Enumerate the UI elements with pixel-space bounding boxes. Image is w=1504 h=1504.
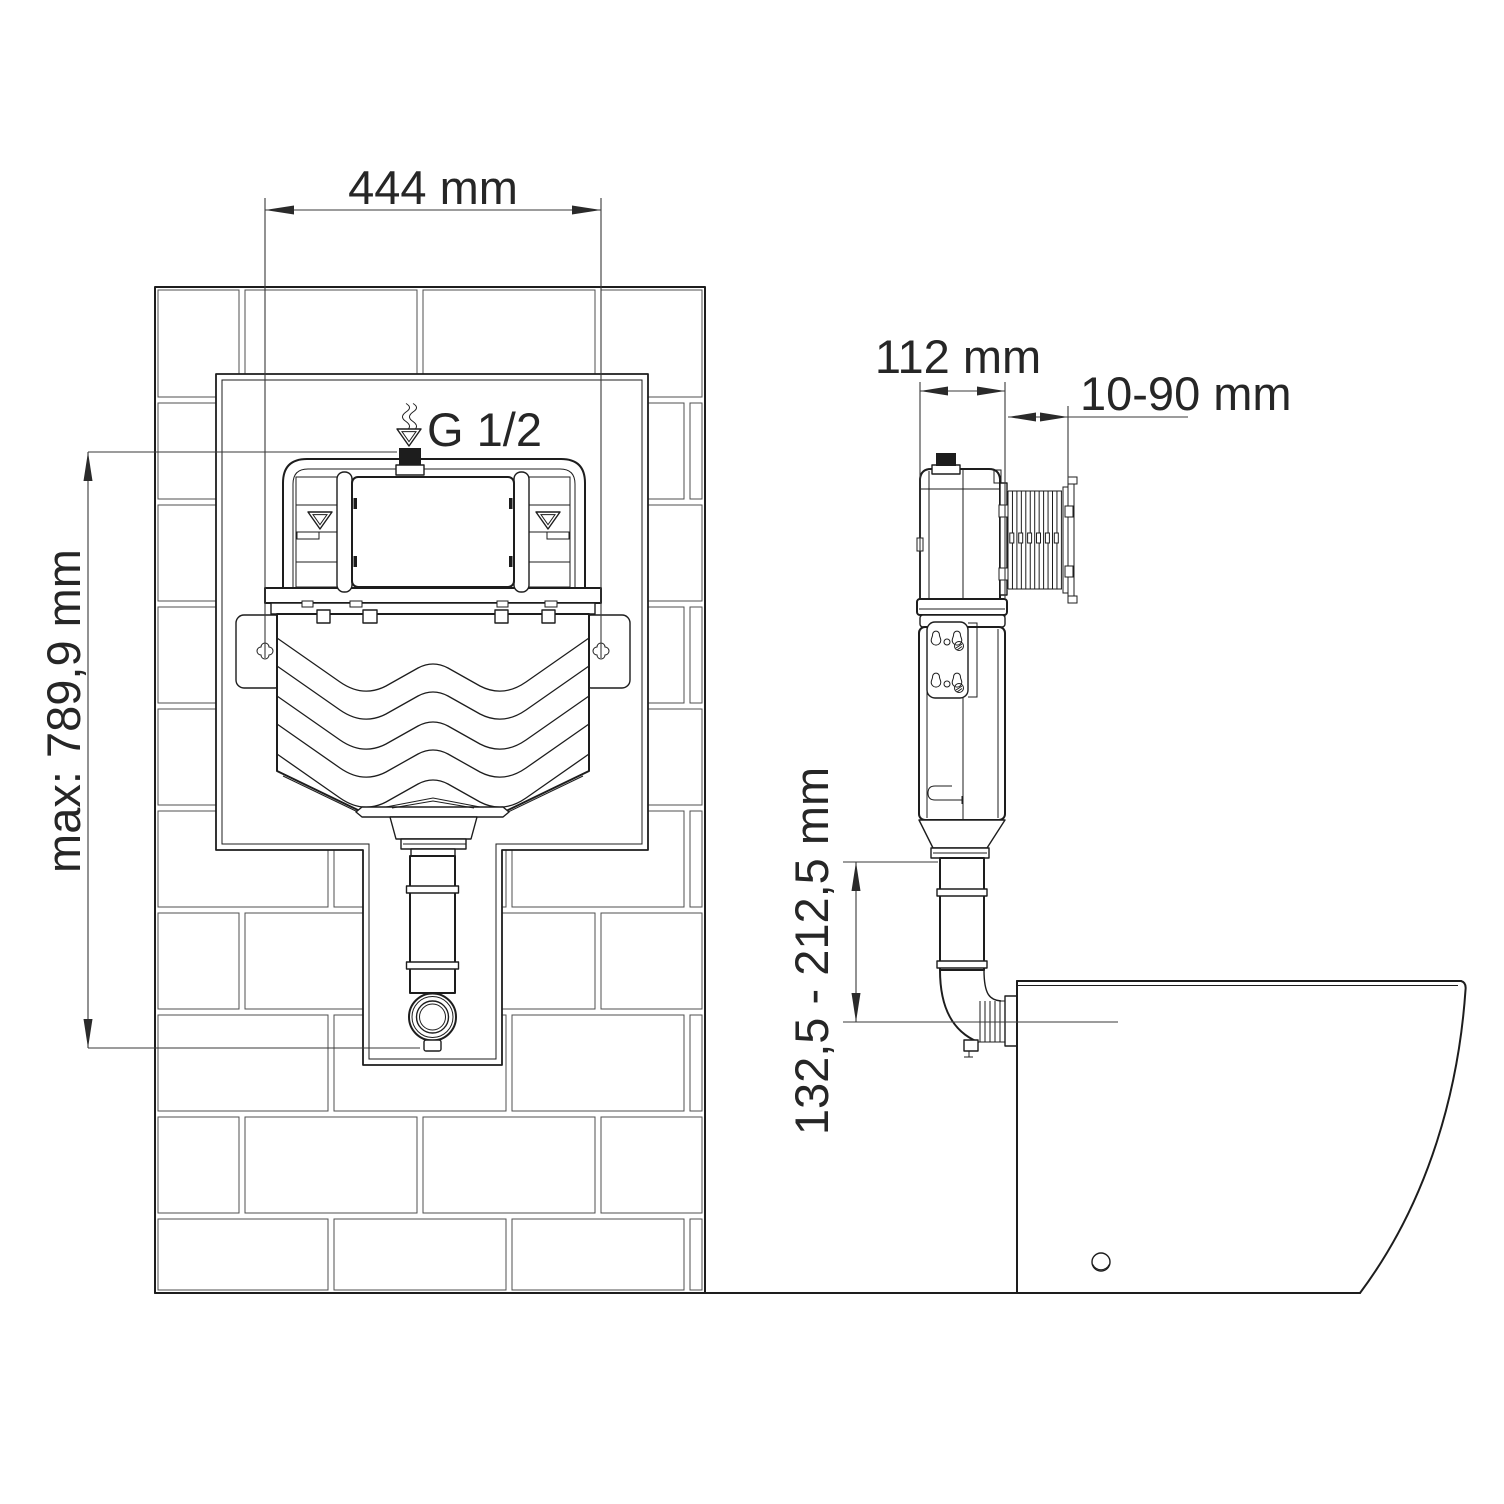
side-view: 112 mm 10-90 mm 132,5 - 212,5 mm xyxy=(785,330,1466,1293)
adjustable-wall-sleeve xyxy=(1008,477,1077,603)
front-view: 444 mm max: 789,9 mm G 1/2 xyxy=(37,161,705,1293)
access-frame xyxy=(283,448,585,592)
dim-side-wall-range-label: 10-90 mm xyxy=(1080,367,1292,420)
dim-front-max-height-label: max: 789,9 mm xyxy=(37,549,90,873)
technical-drawing-canvas: 444 mm max: 789,9 mm G 1/2 xyxy=(0,0,1504,1504)
inlet-cap-side xyxy=(936,453,956,466)
drain-valve xyxy=(964,1040,978,1051)
dim-side-depth-label: 112 mm xyxy=(875,330,1041,383)
panel-rail-right xyxy=(514,472,529,592)
mounting-bracket-left xyxy=(236,615,283,688)
flush-pipe-side xyxy=(937,858,1017,1057)
mounting-bracket-right xyxy=(583,615,630,688)
dim-side-outlet-height-label: 132,5 - 212,5 mm xyxy=(785,767,838,1135)
toilet-bowl-outline xyxy=(1017,981,1466,1293)
dimension-wall-range: 10-90 mm xyxy=(1008,367,1292,480)
cistern-lower-side xyxy=(917,599,1007,858)
panel-rail-left xyxy=(337,472,352,592)
bowl-fixing-cap xyxy=(1092,1253,1110,1271)
access-panel xyxy=(352,477,514,587)
inlet-thread-label: G 1/2 xyxy=(427,403,542,456)
inlet-cap-front xyxy=(399,448,421,465)
cistern-installation-diagram: 444 mm max: 789,9 mm G 1/2 xyxy=(0,0,1504,1504)
dim-front-width-label: 444 mm xyxy=(348,161,518,214)
